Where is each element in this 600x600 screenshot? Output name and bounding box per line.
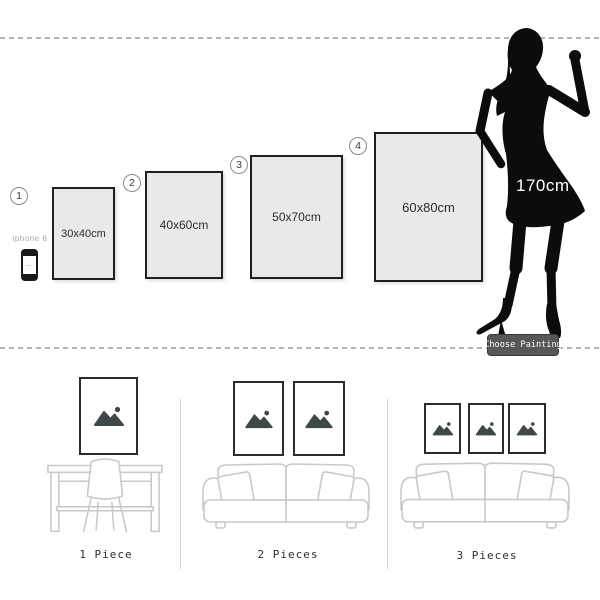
image-placeholder-icon bbox=[93, 405, 125, 427]
size-option-3-badge: 3 bbox=[230, 156, 248, 174]
model-height-label: 170cm bbox=[516, 176, 570, 196]
sofa-illustration bbox=[200, 458, 372, 530]
scene1-label: 1 Piece bbox=[51, 548, 161, 561]
size-guide-image: 1 2 3 4 30x40cm 40x60cm 50x70cm 60x80cm … bbox=[0, 0, 600, 600]
choose-painting-button[interactable]: Choose Painting bbox=[487, 334, 559, 356]
scene1-art-frame bbox=[79, 377, 138, 455]
scene3-label: 3 Pieces bbox=[432, 549, 542, 562]
size-frame-30x40-label: 30x40cm bbox=[61, 228, 106, 240]
scene-divider-1 bbox=[180, 399, 181, 569]
scene2-art-frame-1 bbox=[233, 381, 284, 456]
scene3-art-frame-1 bbox=[424, 403, 461, 454]
scene3-art-frame-2 bbox=[468, 403, 504, 454]
image-placeholder-icon bbox=[432, 421, 454, 436]
size-frame-60x80-label: 60x80cm bbox=[402, 200, 455, 215]
size-frame-50x70: 50x70cm bbox=[250, 155, 343, 279]
iphone-label: iphone 6 bbox=[8, 234, 52, 243]
scene2-label: 2 Pieces bbox=[233, 548, 343, 561]
image-placeholder-icon bbox=[516, 421, 538, 436]
size-frame-40x60: 40x60cm bbox=[145, 171, 223, 279]
iphone-screen bbox=[23, 256, 36, 274]
size-frame-40x60-label: 40x60cm bbox=[160, 218, 209, 232]
image-placeholder-icon bbox=[244, 409, 274, 429]
sofa-illustration bbox=[398, 457, 572, 530]
scene3-art-frame-3 bbox=[508, 403, 546, 454]
iphone-icon bbox=[21, 249, 38, 281]
iphone-bottom-cap bbox=[23, 274, 36, 279]
size-option-1-badge: 1 bbox=[10, 187, 28, 205]
scene-divider-2 bbox=[387, 399, 388, 569]
scene2-art-frame-2 bbox=[293, 381, 345, 456]
size-frame-50x70-label: 50x70cm bbox=[272, 210, 321, 224]
size-option-4-badge: 4 bbox=[349, 137, 367, 155]
desk-chair-illustration bbox=[46, 455, 164, 535]
size-option-2-badge: 2 bbox=[123, 174, 141, 192]
image-placeholder-icon bbox=[304, 409, 334, 429]
size-frame-30x40: 30x40cm bbox=[52, 187, 115, 280]
image-placeholder-icon bbox=[475, 421, 497, 436]
